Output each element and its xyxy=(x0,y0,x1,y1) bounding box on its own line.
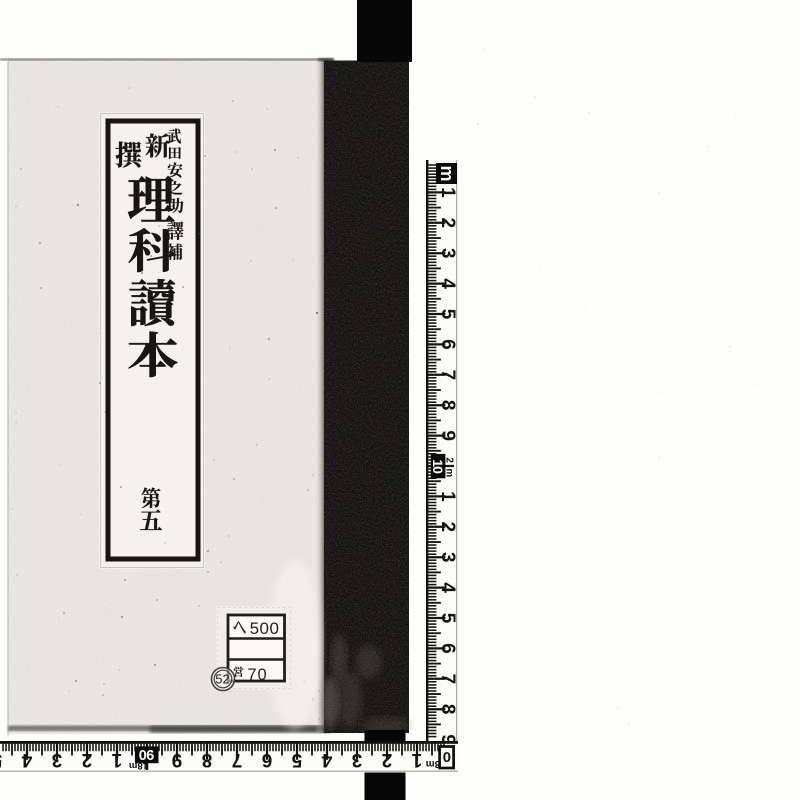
svg-text:8m: 8m xyxy=(426,758,441,769)
svg-text:6: 6 xyxy=(262,749,273,770)
svg-text:5: 5 xyxy=(437,309,458,320)
svg-text:4: 4 xyxy=(437,582,458,593)
svg-text:90: 90 xyxy=(139,746,155,762)
svg-text:2: 2 xyxy=(437,218,458,229)
svg-text:5: 5 xyxy=(291,749,302,770)
svg-text:8: 8 xyxy=(437,400,458,411)
svg-text:0: 0 xyxy=(443,748,451,765)
svg-text:4: 4 xyxy=(321,749,332,770)
svg-text:6: 6 xyxy=(437,339,458,350)
svg-text:4: 4 xyxy=(21,749,32,770)
svg-text:2: 2 xyxy=(437,522,458,533)
svg-text:1: 1 xyxy=(111,749,122,770)
svg-text:7: 7 xyxy=(437,674,458,685)
svg-text:3: 3 xyxy=(437,552,458,563)
svg-text:m: m xyxy=(437,165,457,181)
svg-text:18m: 18m xyxy=(129,760,148,771)
svg-text:1: 1 xyxy=(411,749,422,770)
svg-text:500: 500 xyxy=(250,619,280,638)
svg-text:9: 9 xyxy=(172,749,183,770)
svg-text:1: 1 xyxy=(437,187,458,198)
svg-text:2: 2 xyxy=(382,749,393,770)
svg-text:3: 3 xyxy=(437,248,458,259)
svg-text:7: 7 xyxy=(437,370,458,381)
svg-text:2: 2 xyxy=(444,457,455,463)
svg-text:8: 8 xyxy=(202,749,213,770)
svg-text:2: 2 xyxy=(82,749,93,770)
svg-text:5: 5 xyxy=(437,613,458,624)
svg-text:9: 9 xyxy=(437,430,458,441)
svg-text:1: 1 xyxy=(437,491,458,502)
svg-text:4: 4 xyxy=(437,278,458,289)
svg-text:7: 7 xyxy=(232,749,243,770)
svg-text:52: 52 xyxy=(215,672,229,687)
svg-text:6: 6 xyxy=(437,643,458,654)
svg-text:5: 5 xyxy=(0,749,2,770)
svg-text:m: m xyxy=(444,468,455,477)
svg-text:8: 8 xyxy=(437,704,458,715)
svg-text:70: 70 xyxy=(247,666,267,684)
svg-text:3: 3 xyxy=(52,749,63,770)
svg-text:3: 3 xyxy=(352,749,363,770)
